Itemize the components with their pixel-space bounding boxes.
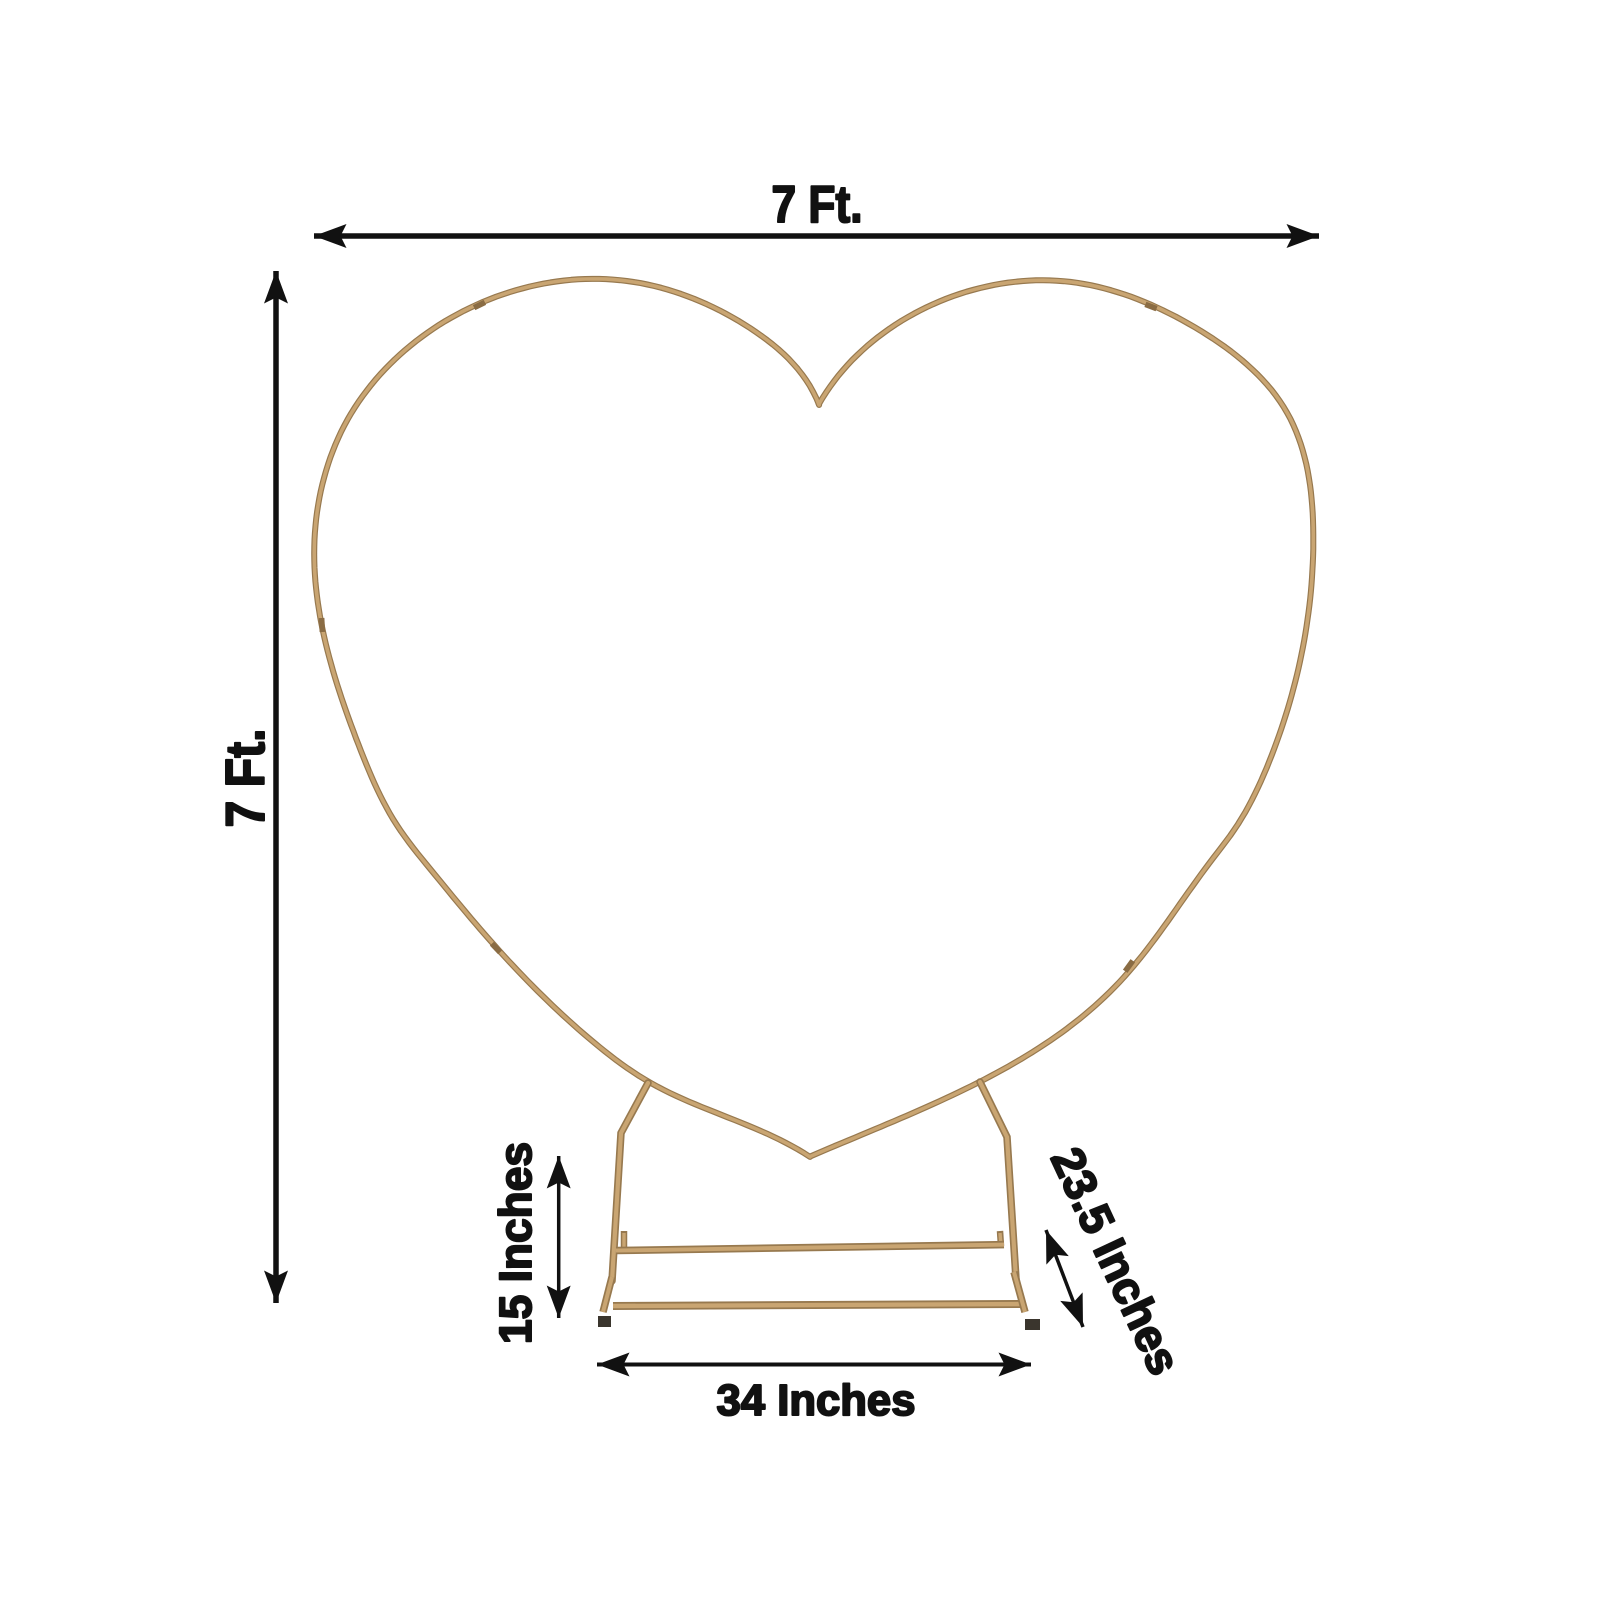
svg-text:23.5 Inches: 23.5 Inches (1041, 1139, 1191, 1382)
svg-text:7 Ft.: 7 Ft. (772, 175, 863, 233)
svg-text:15 Inches: 15 Inches (490, 1142, 541, 1344)
svg-text:34 Inches: 34 Inches (717, 1377, 916, 1425)
svg-text:7 Ft.: 7 Ft. (214, 729, 276, 828)
